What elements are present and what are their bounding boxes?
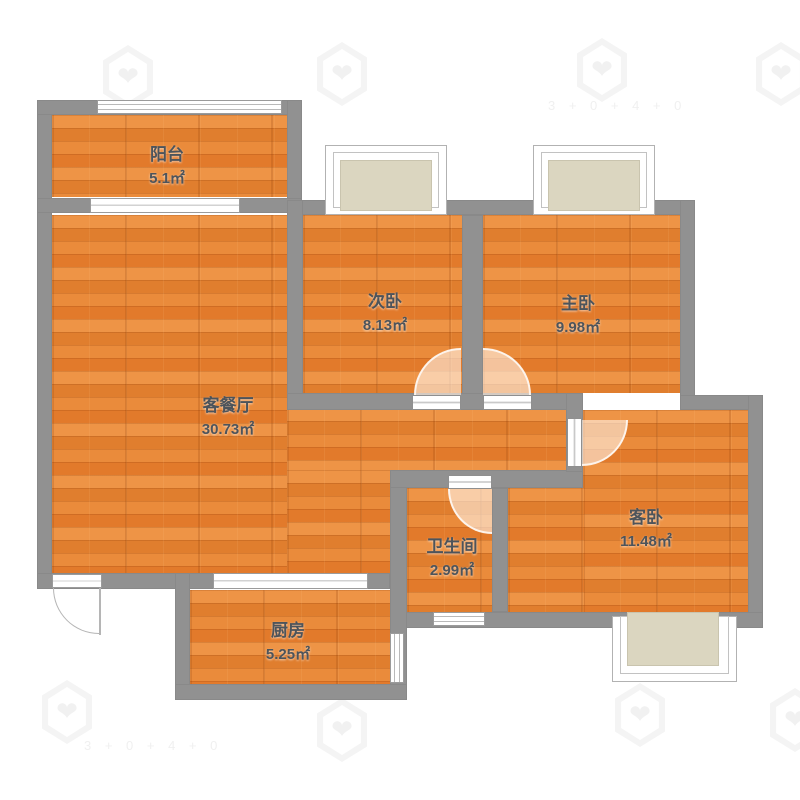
heart-icon: ❤ bbox=[331, 58, 353, 89]
room-label-balcony: 阳台 5.1㎡ bbox=[149, 143, 185, 189]
floor-plan: ❤ ❤ ❤ ❤ ❤ ❤ ❤ ❤ 3 + 0 + 4 + 0 3 + 0 + 4 … bbox=[0, 0, 800, 800]
room-name: 客卧 bbox=[620, 506, 672, 531]
bathroom-window[interactable] bbox=[433, 612, 485, 626]
corridor-floor[interactable] bbox=[287, 470, 391, 573]
watermark-shield-icon: ❤ bbox=[752, 42, 800, 106]
entrance-door-swing-arc bbox=[53, 588, 99, 634]
second-bedroom-door[interactable] bbox=[412, 395, 461, 410]
master-bedroom-bay-window-sill bbox=[548, 160, 640, 211]
room-label-living-dining: 客餐厅 30.73㎡ bbox=[202, 394, 255, 440]
room-guest-bedroom-floor-ext[interactable] bbox=[508, 488, 584, 613]
watermark-shield-icon: ❤ bbox=[611, 683, 669, 747]
room-label-bathroom: 卫生间 2.99㎡ bbox=[427, 535, 478, 581]
master-bedroom-door[interactable] bbox=[483, 395, 532, 410]
wall-bedroom-divider bbox=[462, 215, 483, 395]
room-label-master-bedroom: 主卧 9.98㎡ bbox=[556, 292, 600, 338]
guest-bedroom-door[interactable] bbox=[567, 418, 582, 467]
room-name: 主卧 bbox=[556, 292, 600, 317]
room-name: 次卧 bbox=[363, 290, 407, 315]
room-label-guest-bedroom: 客卧 11.48㎡ bbox=[620, 506, 672, 552]
wall-outer-left bbox=[37, 100, 52, 588]
room-living-dining-floor[interactable] bbox=[52, 215, 290, 573]
guest-bedroom-bay-window-sill bbox=[627, 612, 719, 666]
room-area: 5.25㎡ bbox=[266, 643, 310, 665]
room-area: 11.48㎡ bbox=[620, 530, 672, 552]
watermark-text: 3 + 0 + 4 + 0 bbox=[548, 98, 686, 113]
wall-guest-right bbox=[748, 395, 763, 628]
heart-icon: ❤ bbox=[629, 699, 651, 730]
balcony-window[interactable] bbox=[97, 100, 282, 114]
room-name: 厨房 bbox=[266, 619, 310, 644]
wall-kitchen-bottom bbox=[175, 684, 407, 700]
watermark-shield-icon: ❤ bbox=[573, 38, 631, 102]
room-name: 客餐厅 bbox=[202, 394, 255, 419]
kitchen-opening[interactable] bbox=[213, 573, 368, 589]
second-bedroom-bay-window-sill bbox=[340, 160, 432, 211]
watermark-shield-icon: ❤ bbox=[313, 698, 371, 762]
watermark-shield-icon: ❤ bbox=[38, 680, 96, 744]
heart-icon: ❤ bbox=[331, 714, 353, 745]
entrance-door-opening[interactable] bbox=[52, 574, 102, 588]
heart-icon: ❤ bbox=[591, 54, 613, 85]
wall-master-right bbox=[680, 200, 695, 410]
heart-icon: ❤ bbox=[56, 696, 78, 727]
heart-icon: ❤ bbox=[117, 61, 139, 92]
heart-icon: ❤ bbox=[770, 58, 792, 89]
room-name: 卫生间 bbox=[427, 535, 478, 560]
watermark-text: 3 + 0 + 4 + 0 bbox=[84, 738, 222, 753]
room-name: 阳台 bbox=[149, 143, 185, 168]
bathroom-door[interactable] bbox=[448, 475, 492, 489]
wall-living-second-bedroom bbox=[287, 200, 303, 410]
room-area: 9.98㎡ bbox=[556, 316, 600, 338]
room-label-kitchen: 厨房 5.25㎡ bbox=[266, 619, 310, 665]
room-area: 8.13㎡ bbox=[363, 314, 407, 336]
room-area: 5.1㎡ bbox=[149, 167, 185, 189]
watermark-shield-icon: ❤ bbox=[313, 42, 371, 106]
room-label-second-bedroom: 次卧 8.13㎡ bbox=[363, 290, 407, 336]
kitchen-window[interactable] bbox=[390, 633, 404, 683]
wall-bathroom-right bbox=[492, 488, 508, 612]
balcony-living-opening[interactable] bbox=[90, 198, 240, 213]
room-area: 2.99㎡ bbox=[427, 559, 478, 581]
hallway-floor[interactable] bbox=[287, 408, 566, 470]
entrance-door-leaf[interactable] bbox=[99, 588, 101, 635]
heart-icon: ❤ bbox=[784, 704, 800, 735]
watermark-shield-icon: ❤ bbox=[766, 688, 800, 752]
room-area: 30.73㎡ bbox=[202, 418, 255, 440]
wall-kitchen-left bbox=[175, 573, 190, 700]
